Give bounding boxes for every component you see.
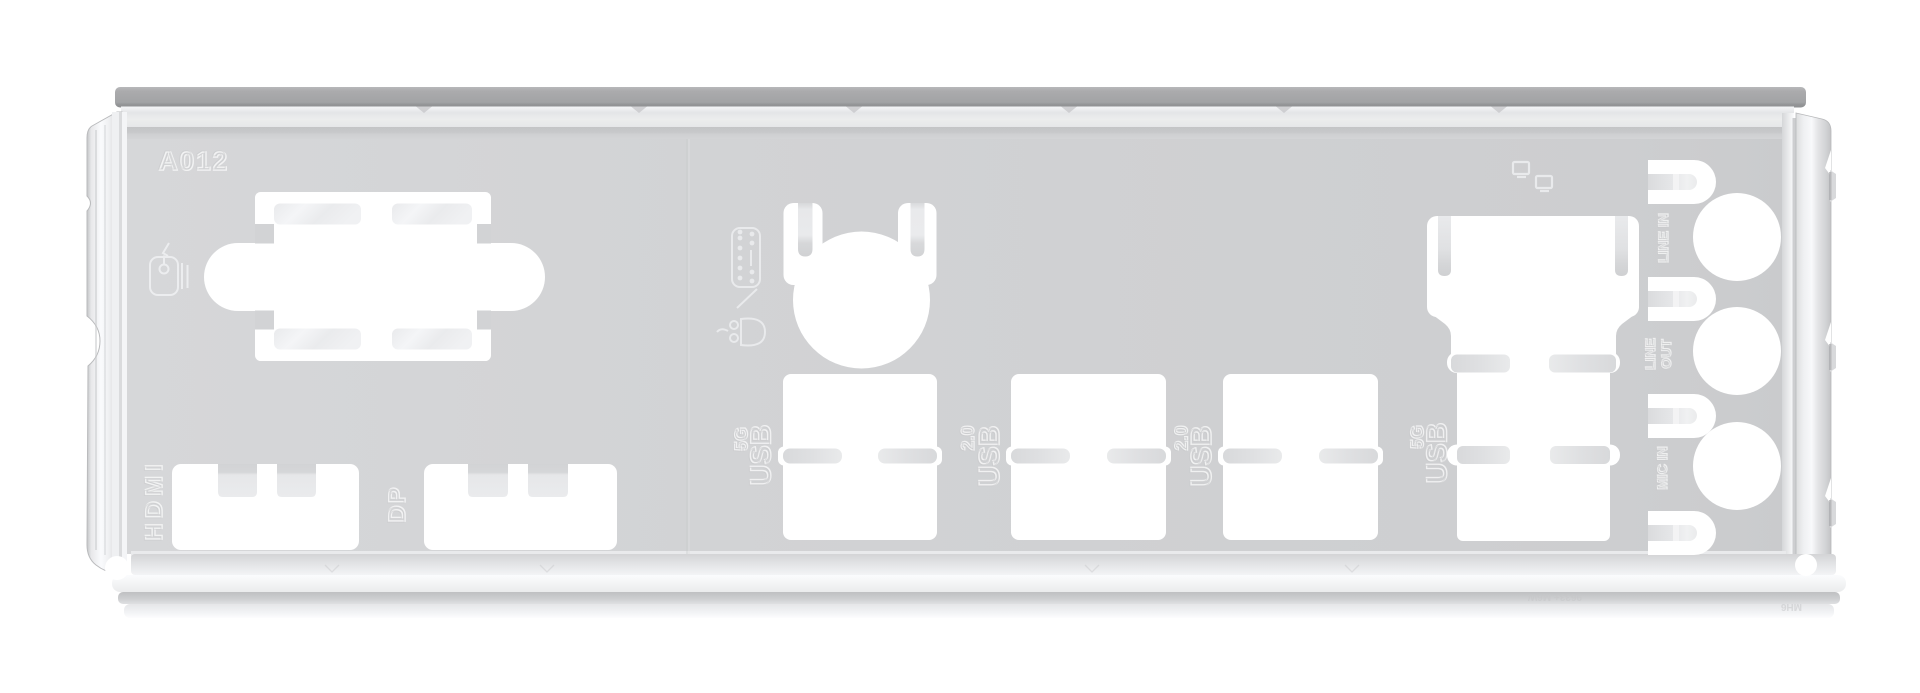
svg-text:LINE: LINE [1641,339,1657,371]
svg-text:DP: DP [383,486,410,523]
svg-text:LINE IN: LINE IN [1654,214,1670,264]
svg-text:2.0: 2.0 [957,426,977,451]
svg-text:5G: 5G [731,428,751,452]
svg-text:OUT: OUT [1657,340,1673,370]
svg-text:2.0: 2.0 [1171,426,1191,451]
svg-text:9633+ M6W: 9633+ M6W [1527,591,1582,602]
svg-text:HDMI: HDMI [140,460,167,541]
svg-text:MH6: MH6 [1780,601,1802,612]
svg-text:5G: 5G [1407,426,1427,450]
svg-text:A012: A012 [158,145,228,175]
svg-text:MIC IN: MIC IN [1653,447,1669,491]
